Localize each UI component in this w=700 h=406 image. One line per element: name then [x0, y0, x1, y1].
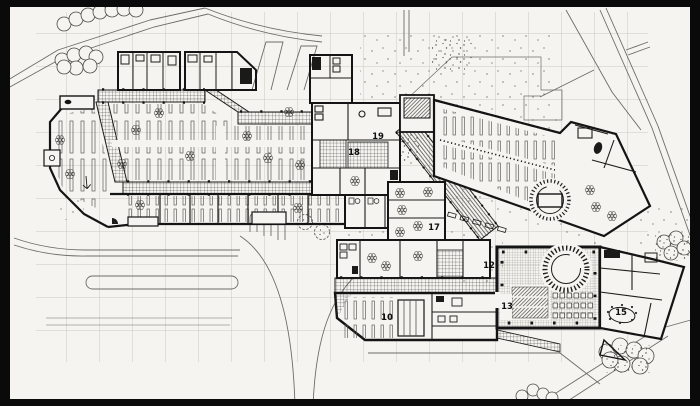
area-label-12: 12	[483, 261, 495, 271]
area-label-19: 19	[372, 132, 384, 142]
area-label-10: 10	[381, 313, 393, 323]
area-label-17: 17	[428, 223, 440, 233]
area-label-13: 13	[501, 302, 513, 312]
scanned-plan-sheet: 10121315171819	[0, 0, 700, 406]
floor-plan-drawing: 10121315171819	[0, 0, 700, 406]
area-label-18: 18	[348, 148, 360, 158]
area-label-15: 15	[615, 308, 627, 318]
